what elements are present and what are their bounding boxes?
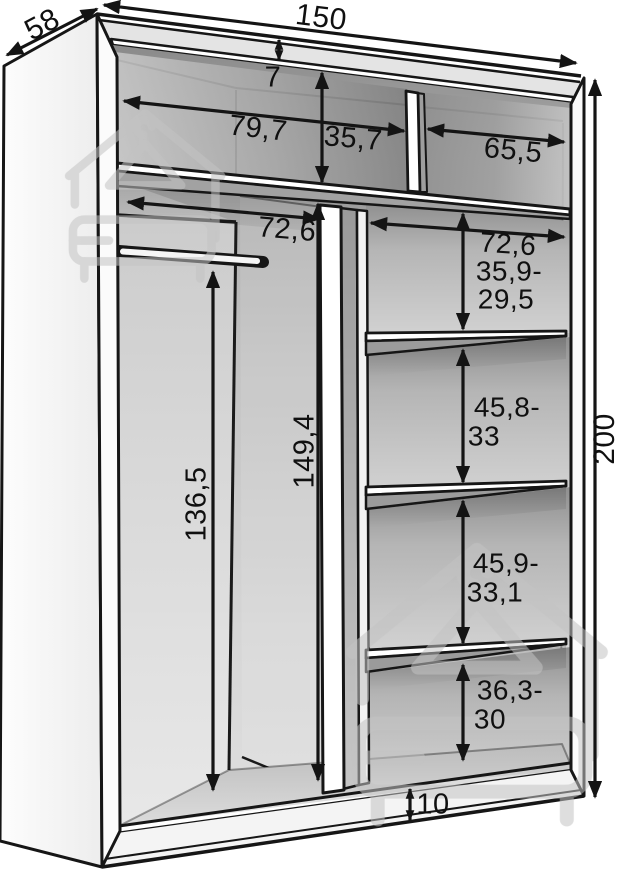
dim-right-gap-3-line2: 33,1 xyxy=(467,576,524,607)
diagram-canvas: 58 150 7 79,7 35,7 65,5 72,6 72, xyxy=(0,0,619,870)
dim-right-gap-4-line1: 36,3- xyxy=(477,674,543,705)
dim-top-left-width-label: 79,7 xyxy=(227,109,289,147)
dim-right-gap-1-line2: 29,5 xyxy=(478,283,535,314)
wardrobe-dimension-diagram: 58 150 7 79,7 35,7 65,5 72,6 72, xyxy=(0,0,619,870)
left-side-panel xyxy=(0,14,102,867)
dim-base-height-label: 10 xyxy=(416,789,449,821)
dim-top-right-width-label: 65,5 xyxy=(483,132,544,169)
dim-left-section-height-label: 149,4 xyxy=(289,413,321,488)
dim-left-section-width-label: 72,6 xyxy=(257,211,318,248)
dim-right-gap-1-line1: 35,9- xyxy=(476,255,542,286)
dim-base-height: 10 xyxy=(410,789,450,821)
dim-top-gap-label: 7 xyxy=(265,62,282,94)
divider-left-face xyxy=(240,196,322,790)
dim-right-gap-2-line1: 45,8- xyxy=(474,391,540,422)
dim-right-gap-3-line1: 45,9- xyxy=(473,547,539,578)
dim-top-height-label: 35,7 xyxy=(323,120,384,157)
interior-left-wall xyxy=(117,180,236,826)
top-compartment-divider xyxy=(406,91,427,192)
right-frame xyxy=(571,78,584,796)
dim-rail-height-label: 136,5 xyxy=(181,466,213,541)
dim-right-gap-4-line2: 30 xyxy=(474,703,506,734)
dim-right-gap-2-line2: 33 xyxy=(468,420,500,451)
dim-width-label: 150 xyxy=(294,0,349,37)
dim-total-height-label: 200 xyxy=(588,413,619,465)
